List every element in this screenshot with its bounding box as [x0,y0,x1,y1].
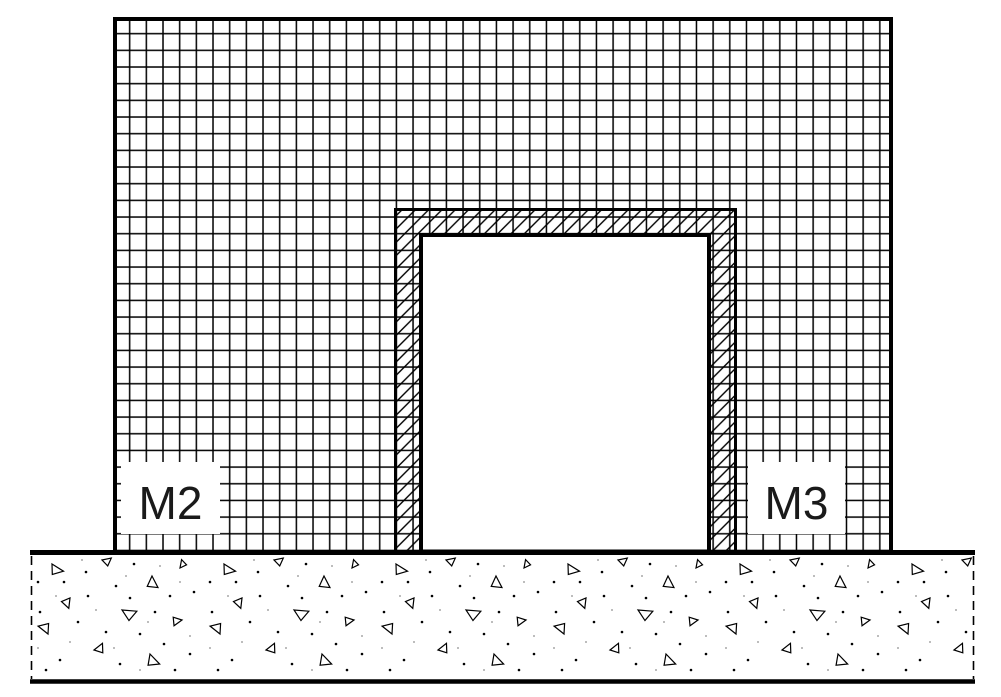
door-opening [421,235,709,552]
strip-foundation [30,553,975,682]
wall-elevation-drawing: M2 M3 [0,0,1001,697]
label-m3-group: M3 [748,462,845,534]
elevation-drawing-canvas: M2 M3 [0,0,1001,697]
label-m2-group: M2 [121,462,220,534]
door-opening-assembly [396,210,736,552]
label-m3: M3 [765,477,829,529]
label-m2: M2 [139,477,203,529]
foundation-concrete-fill [31,554,974,680]
